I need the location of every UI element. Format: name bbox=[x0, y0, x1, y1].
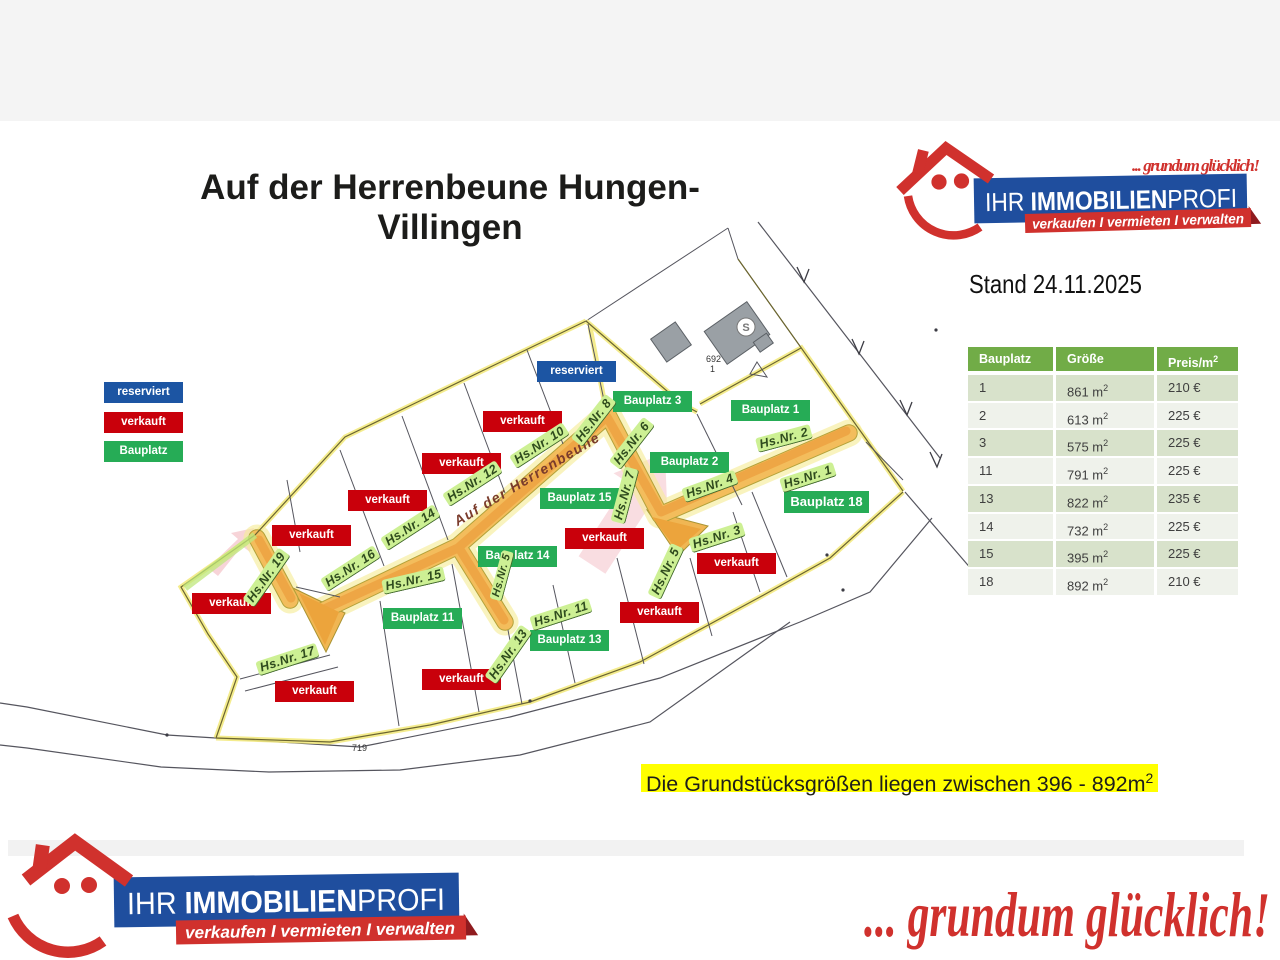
svg-text:692: 692 bbox=[706, 354, 721, 364]
svg-text:IHR IMMOBILIENPROFI: IHR IMMOBILIENPROFI bbox=[127, 882, 445, 921]
svg-text:1: 1 bbox=[710, 364, 715, 374]
svg-text:... grundum glücklich!: ... grundum glücklich! bbox=[1132, 156, 1260, 175]
svg-text:S: S bbox=[742, 322, 749, 334]
svg-text:... grundum glücklich!: ... grundum glücklich! bbox=[864, 879, 1270, 950]
svg-text:719: 719 bbox=[352, 743, 367, 753]
